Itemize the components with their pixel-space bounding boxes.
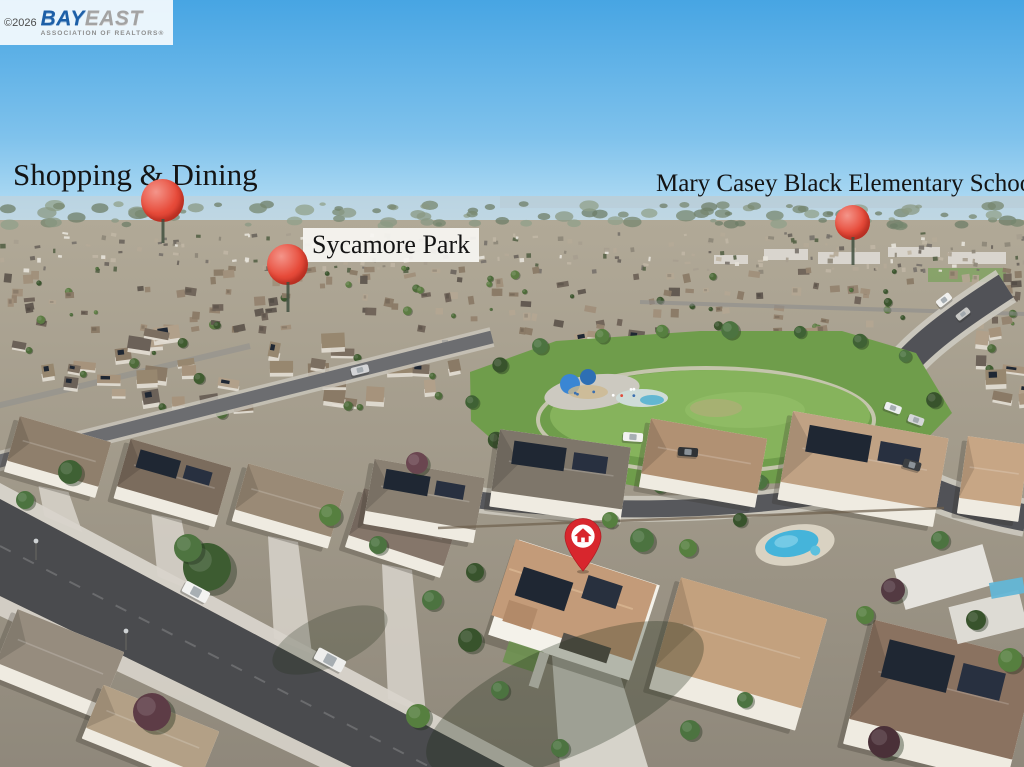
bayeast-wordmark: BAYEAST: [41, 8, 165, 29]
map-pin-elementary-school: [835, 205, 870, 240]
association-of-realtors-text: ASSOCIATION OF REALTORS®: [41, 31, 165, 38]
watermark-logo: ©2026 BAYEAST ASSOCIATION OF REALTORS®: [0, 0, 173, 45]
aerial-neighborhood-scene: [0, 0, 1024, 767]
house-icon-door: [581, 538, 585, 543]
home-location-pin: [559, 517, 607, 574]
pin-stem: [851, 237, 854, 265]
bayeast-bay-text: BAY: [41, 7, 85, 30]
bayeast-east-text: EAST: [85, 7, 143, 30]
copyright-year: ©2026: [4, 17, 37, 29]
bayeast-logo: BAYEAST ASSOCIATION OF REALTORS®: [41, 8, 165, 38]
label-elementary-school: Mary Casey Black Elementary School: [656, 170, 1024, 198]
aerial-listing-photo: ©2026 BAYEAST ASSOCIATION OF REALTORS® S…: [0, 0, 1024, 767]
pin-stem: [286, 282, 289, 312]
label-shopping-dining: Shopping & Dining: [13, 157, 258, 193]
map-pin-shopping-dining: [141, 179, 184, 222]
label-sycamore-park: Sycamore Park: [303, 228, 479, 262]
pin-stem: [161, 219, 164, 243]
map-pin-sycamore-park: [267, 244, 308, 285]
